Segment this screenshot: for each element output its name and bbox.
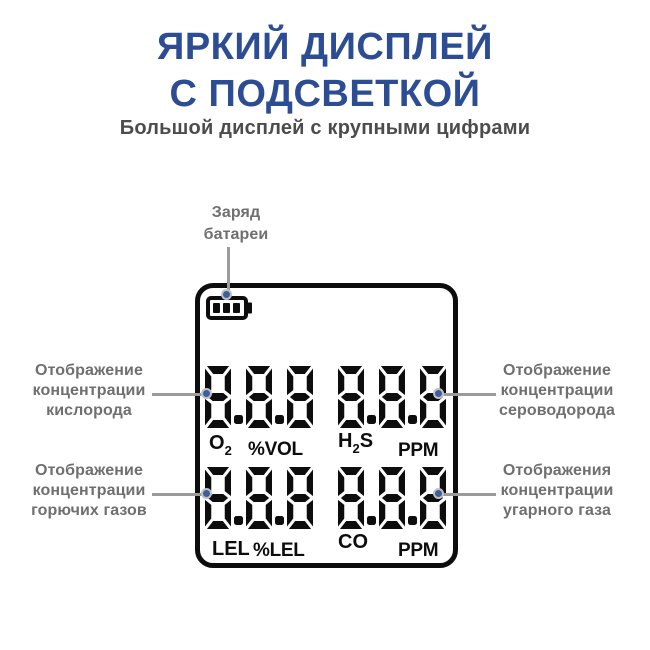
co-unit-label: PPM <box>398 540 438 562</box>
h2s-unit-label: PPM <box>398 440 438 462</box>
callout-oxygen-line1: Отображение <box>14 361 164 381</box>
h2s-connector-dot <box>433 388 444 399</box>
callout-co-line3: угарного газа <box>482 501 632 521</box>
callout-oxygen-line3: кислорода <box>14 401 164 421</box>
segment-digit <box>420 467 446 529</box>
o2-unit-label: %VOL <box>248 439 303 461</box>
h2s-gas-sub: 2 <box>352 441 359 456</box>
segment-digit <box>287 467 313 529</box>
callout-co-line2: концентрации <box>482 481 632 501</box>
segment-digit <box>379 467 405 529</box>
h2s-connector-line <box>438 393 496 396</box>
co-gas-main: CO <box>338 531 368 553</box>
lel-gas-label: LEL <box>212 538 250 561</box>
decimal-point <box>408 415 417 424</box>
decimal-point <box>408 516 417 525</box>
segment-digit <box>379 366 405 428</box>
o2-gas-main: O <box>209 432 225 454</box>
decimal-point <box>367 415 376 424</box>
callout-h2s-line1: Отображение <box>482 361 632 381</box>
callout-battery-line1: Заряд <box>161 202 311 224</box>
lcd-display: O2 %VOL H2S PPM LEL %LEL CO PPM <box>195 283 458 568</box>
callout-hydrogen-sulfide: Отображение концентрации сероводорода <box>482 361 632 421</box>
decimal-point <box>367 516 376 525</box>
callout-h2s-line3: сероводорода <box>482 401 632 421</box>
page-title: ЯРКИЙ ДИСПЛЕЙ С ПОДСВЕТКОЙ <box>0 24 650 118</box>
lel-unit-label: %LEL <box>253 540 305 562</box>
o2-gas-sub: 2 <box>225 443 232 458</box>
callout-battery-charge: Заряд батареи <box>161 202 311 246</box>
co-gas-label: CO <box>338 531 368 554</box>
segment-digit <box>246 467 272 529</box>
o2-gas-label: O2 <box>209 432 232 457</box>
page-subtitle: Большой дисплей с крупными цифрами <box>0 117 650 140</box>
h2s-gas-main: H <box>338 430 352 452</box>
co-reading <box>338 467 446 529</box>
callout-oxygen: Отображение концентрации кислорода <box>14 361 164 421</box>
infographic: ЯРКИЙ ДИСПЛЕЙ С ПОДСВЕТКОЙ Большой диспл… <box>0 0 650 650</box>
segment-digit <box>246 366 272 428</box>
callout-combustible-gases: Отображение концентрации горючих газов <box>14 461 164 521</box>
battery-bar <box>233 303 240 313</box>
battery-terminal <box>247 303 252 314</box>
co-connector-line <box>438 493 496 496</box>
h2s-reading <box>338 366 446 428</box>
callout-combustible-line3: горючих газов <box>14 501 164 521</box>
page-title-line2: С ПОДСВЕТКОЙ <box>0 71 650 118</box>
segment-digit <box>338 467 364 529</box>
decimal-point <box>275 516 284 525</box>
combustible-connector-dot <box>201 488 212 499</box>
callout-combustible-line2: концентрации <box>14 481 164 501</box>
lel-gas-main: LEL <box>212 538 250 560</box>
decimal-point <box>234 516 243 525</box>
h2s-gas-tail: S <box>360 430 373 452</box>
callout-carbon-monoxide: Отображения концентрации угарного газа <box>482 461 632 521</box>
battery-bar <box>213 303 220 313</box>
callout-combustible-line1: Отображение <box>14 461 164 481</box>
battery-bar <box>223 303 230 313</box>
oxygen-connector-dot <box>201 388 212 399</box>
h2s-gas-label: H2S <box>338 430 373 455</box>
page-title-line1: ЯРКИЙ ДИСПЛЕЙ <box>0 24 650 71</box>
battery-connector-dot <box>221 289 232 300</box>
callout-h2s-line2: концентрации <box>482 381 632 401</box>
lel-reading <box>205 467 313 529</box>
segment-digit <box>338 366 364 428</box>
callout-co-line1: Отображения <box>482 461 632 481</box>
callout-battery-line2: батареи <box>161 224 311 246</box>
callout-oxygen-line2: концентрации <box>14 381 164 401</box>
o2-reading <box>205 366 313 428</box>
decimal-point <box>234 415 243 424</box>
co-connector-dot <box>433 488 444 499</box>
segment-digit <box>287 366 313 428</box>
decimal-point <box>275 415 284 424</box>
